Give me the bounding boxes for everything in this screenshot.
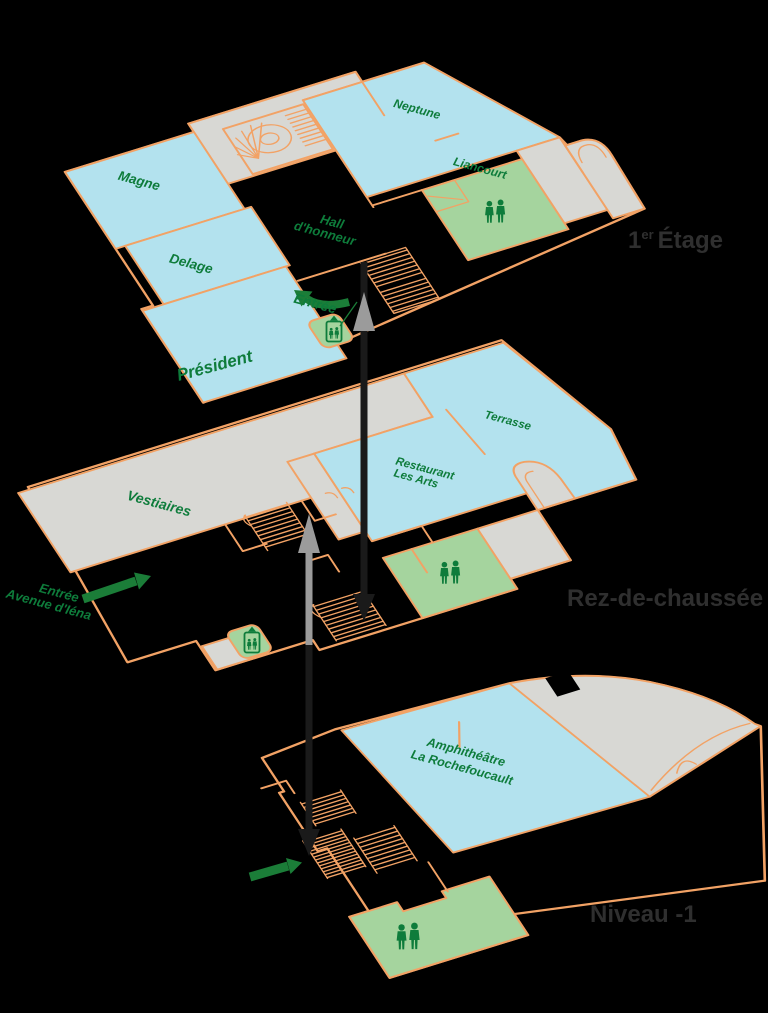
floor-label-1er-etage: 1erÉtage: [628, 226, 723, 254]
floor-rez-de-chaussee: [15, 327, 683, 701]
entrance-arrow-niveau1: [250, 858, 302, 877]
gray-up-arrow: [306, 550, 313, 647]
floorplan-stage: Magne Delage Président Neptune Liancourt…: [0, 0, 768, 1013]
floor-niveau-moins-1: [242, 619, 768, 994]
floor-label-niveau-moins-1: Niveau -1: [590, 901, 697, 928]
building-floorplan-diagram: Magne Delage Président Neptune Liancourt…: [0, 0, 768, 1013]
black-down-arrow: [306, 645, 313, 831]
floor-label-rez-de-chaussee: Rez-de-chaussée: [567, 585, 763, 612]
